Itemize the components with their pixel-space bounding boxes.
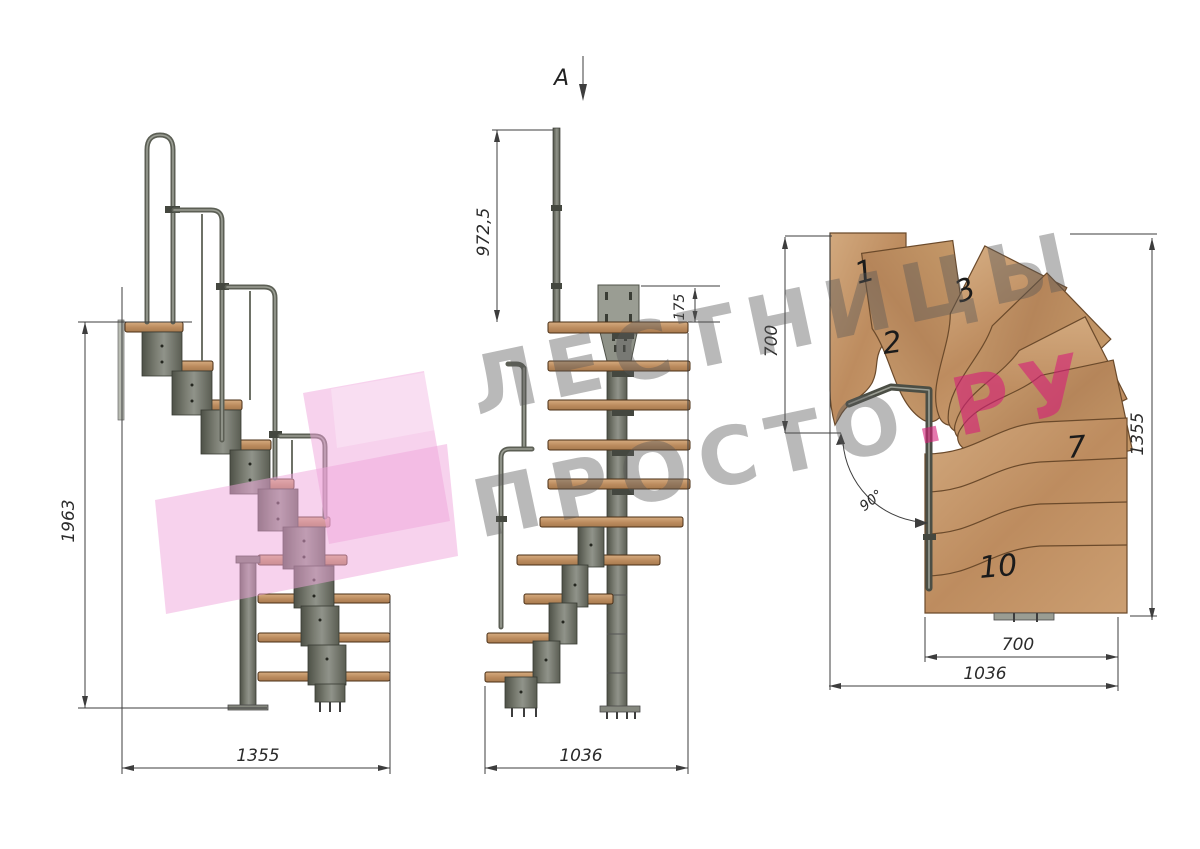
stair-technical-drawing: 1963 1355 A bbox=[0, 0, 1200, 849]
wall-bracket bbox=[118, 320, 124, 420]
plan-dim-depth: 1355 bbox=[1128, 412, 1148, 455]
plan-tread-number-7: 7 bbox=[1066, 429, 1088, 466]
side-feet bbox=[320, 702, 340, 712]
side-dim-width: 1355 bbox=[236, 746, 279, 766]
plan-dim-total-width: 1036 bbox=[963, 664, 1006, 684]
stair-drawing-page: 1963 1355 A bbox=[0, 0, 1200, 849]
rail-joint bbox=[551, 283, 562, 289]
front-rail-post bbox=[553, 128, 560, 324]
plan-dim-turn-angle: 90° bbox=[857, 487, 886, 515]
front-base-plate bbox=[600, 706, 640, 712]
section-cut-label: A bbox=[552, 66, 569, 91]
front-dim-rail-height: 972,5 bbox=[474, 208, 494, 257]
plan-dim-lower-width: 700 bbox=[1002, 635, 1034, 655]
side-dim-height: 1963 bbox=[59, 499, 79, 542]
plan-tread-number-10: 10 bbox=[978, 548, 1019, 586]
rail-joint bbox=[551, 205, 562, 211]
plan-base-plate bbox=[994, 613, 1054, 620]
section-cut-marker: A bbox=[552, 56, 587, 101]
front-dim-width: 1036 bbox=[559, 746, 602, 766]
front-feet bbox=[607, 712, 635, 719]
